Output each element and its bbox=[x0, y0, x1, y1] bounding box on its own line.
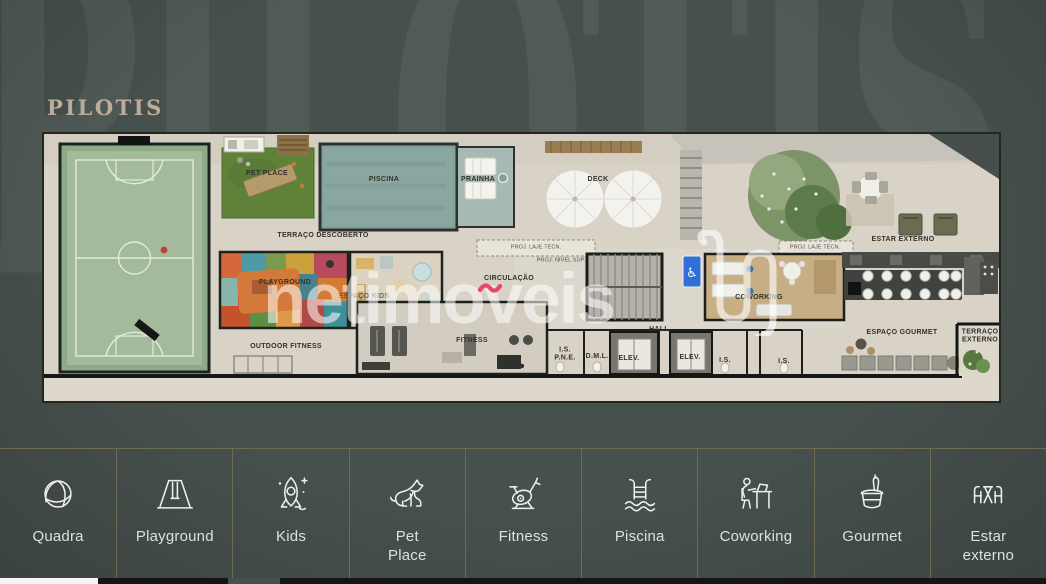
amenity-label: Quadra bbox=[32, 528, 83, 547]
amenity-piscina[interactable]: Piscina bbox=[581, 449, 697, 579]
next-row-gap bbox=[228, 578, 280, 584]
plan-label-circulacao: CIRCULAÇÃO bbox=[484, 275, 534, 283]
plan-label-dml: D.M.L. bbox=[586, 353, 609, 361]
plan-label-deck: DECK bbox=[587, 176, 608, 184]
amenity-estar-externo[interactable]: Estar externo bbox=[930, 449, 1046, 579]
plan-label-hall: HALL bbox=[649, 326, 669, 334]
swing-icon bbox=[152, 471, 198, 517]
plan-label-fitness: FITNESS bbox=[456, 337, 488, 345]
amenity-pet-place[interactable]: Pet Place bbox=[349, 449, 465, 579]
floor-plan-image[interactable]: ♿ bbox=[42, 132, 1001, 403]
plan-label-proj-laje-tecn-2: PROJ. LAJE TÉCN. bbox=[790, 245, 840, 252]
plan-label-is-1: I.S. bbox=[719, 357, 731, 365]
plan-label-terraco-externo: TERRAÇO EXTERNO bbox=[962, 329, 999, 346]
amenity-fitness[interactable]: Fitness bbox=[465, 449, 581, 579]
amenity-playground[interactable]: Playground bbox=[116, 449, 232, 579]
dog-icon bbox=[384, 471, 430, 517]
amenity-label: Fitness bbox=[499, 528, 549, 547]
plan-label-outdoor-fitness: OUTDOOR FITNESS bbox=[250, 343, 322, 351]
volleyball-icon bbox=[35, 471, 81, 517]
amenity-coworking[interactable]: Coworking bbox=[697, 449, 813, 579]
plan-label-elev-1: ELEV. bbox=[618, 355, 639, 363]
plan-label-is-2: I.S. bbox=[778, 358, 790, 366]
amenity-label: Piscina bbox=[615, 528, 665, 547]
plan-label-espaco-gourmet: ESPAÇO GOURMET bbox=[867, 329, 938, 337]
amenity-gourmet[interactable]: Gourmet bbox=[814, 449, 930, 579]
plan-label-espaco-kids: ESPAÇO KIDS bbox=[338, 293, 389, 301]
plan-label-proj-nivel-sup: PROJ. NÍVEL SUP. bbox=[537, 258, 586, 265]
page-title: PILOTIS bbox=[47, 95, 164, 120]
plan-label-elev-2: ELEV. bbox=[679, 354, 700, 362]
plan-label-coworking: COWORKING bbox=[735, 294, 783, 302]
plan-label-playground: PLAYGROUND bbox=[259, 279, 311, 287]
amenity-kids[interactable]: Kids bbox=[232, 449, 348, 579]
amenity-label: Coworking bbox=[720, 528, 793, 547]
amenity-bar: Quadra Playground Kids Pet Place Fitn bbox=[0, 448, 1046, 579]
amenity-label: Kids bbox=[276, 528, 306, 547]
amenity-label: Gourmet bbox=[842, 528, 902, 547]
exercise-bike-icon bbox=[500, 471, 546, 517]
amenity-quadra[interactable]: Quadra bbox=[0, 449, 116, 579]
plan-label-pet-place: PET PLACE bbox=[246, 170, 288, 178]
plan-label-prainha: PRAINHA bbox=[461, 176, 495, 184]
plan-labels-layer: PET PLACEPISCINAPRAINHADECKTERRAÇO DESCO… bbox=[44, 134, 999, 401]
amenity-label: Estar externo bbox=[963, 528, 1014, 566]
person-desk-icon bbox=[733, 471, 779, 517]
pool-ladder-icon bbox=[617, 471, 663, 517]
amenity-label: Pet Place bbox=[388, 528, 427, 566]
next-row-sliver bbox=[0, 578, 1046, 584]
plan-label-piscina: PISCINA bbox=[369, 176, 400, 184]
plan-label-terraco-descoberto: TERRAÇO DESCOBERTO bbox=[277, 232, 368, 240]
pilotis-floorplan-page: PILOTIS PILOTIS bbox=[0, 0, 1046, 584]
champagne-bucket-icon bbox=[849, 471, 895, 517]
plan-label-estar-externo: ESTAR EXTERNO bbox=[872, 236, 935, 244]
outdoor-table-icon bbox=[965, 471, 1011, 517]
plan-label-is-pne: I.S. P.N.E. bbox=[554, 347, 575, 364]
rocket-icon bbox=[268, 471, 314, 517]
next-row-thumb-white bbox=[0, 578, 98, 584]
amenity-label: Playground bbox=[136, 528, 214, 547]
plan-label-proj-laje-tecn-1: PROJ. LAJE TÉCN. bbox=[511, 245, 561, 252]
